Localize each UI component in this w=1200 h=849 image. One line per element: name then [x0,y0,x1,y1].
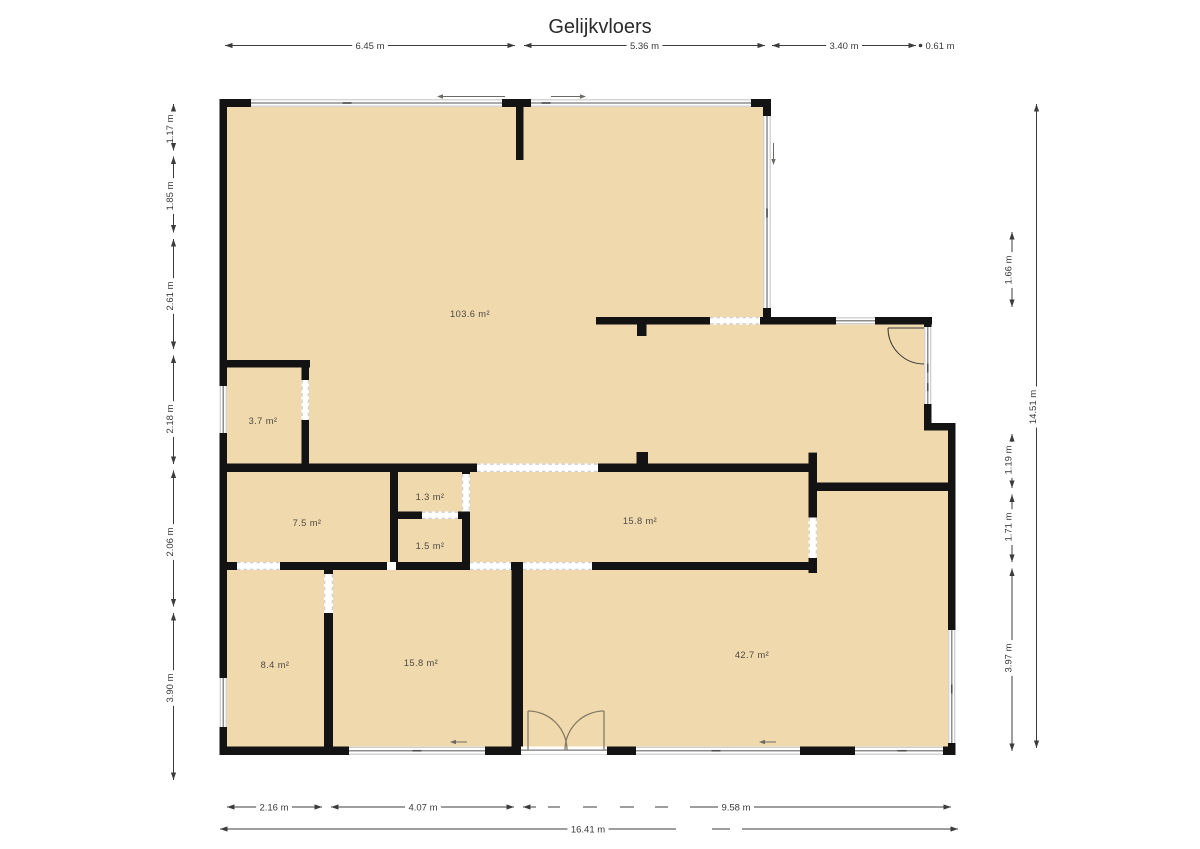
svg-text:6.45 m: 6.45 m [355,41,384,52]
svg-text:1.5 m²: 1.5 m² [416,541,445,551]
svg-text:3.90 m: 3.90 m [165,673,176,702]
svg-text:14.51 m: 14.51 m [1028,390,1039,424]
svg-text:9.58 m: 9.58 m [721,802,750,813]
svg-text:1.71 m: 1.71 m [1004,512,1015,541]
svg-text:1.3 m²: 1.3 m² [416,492,445,502]
svg-text:0.61 m: 0.61 m [926,41,955,52]
svg-text:16.41 m: 16.41 m [571,824,605,835]
svg-text:3.40 m: 3.40 m [829,41,858,52]
svg-text:3.97 m: 3.97 m [1004,643,1015,672]
svg-text:15.8 m²: 15.8 m² [404,658,438,668]
svg-text:Gelijkvloers: Gelijkvloers [548,16,651,38]
svg-text:15.8 m²: 15.8 m² [623,516,657,526]
svg-text:2.18 m: 2.18 m [165,404,176,433]
svg-text:2.16 m: 2.16 m [259,802,288,813]
svg-text:5.36 m: 5.36 m [630,41,659,52]
svg-text:8.4 m²: 8.4 m² [261,660,290,670]
svg-text:4.07 m: 4.07 m [408,802,437,813]
svg-text:42.7 m²: 42.7 m² [735,650,769,660]
svg-text:1.19 m: 1.19 m [1004,445,1015,474]
svg-text:3.7 m²: 3.7 m² [249,416,278,426]
svg-text:103.6 m²: 103.6 m² [450,309,490,319]
svg-text:2.06 m: 2.06 m [165,527,176,556]
svg-text:1.17 m: 1.17 m [165,114,176,143]
svg-text:7.5 m²: 7.5 m² [293,518,322,528]
svg-text:2.61 m: 2.61 m [165,281,176,310]
svg-text:1.66 m: 1.66 m [1004,255,1015,284]
svg-text:1.85 m: 1.85 m [165,181,176,210]
